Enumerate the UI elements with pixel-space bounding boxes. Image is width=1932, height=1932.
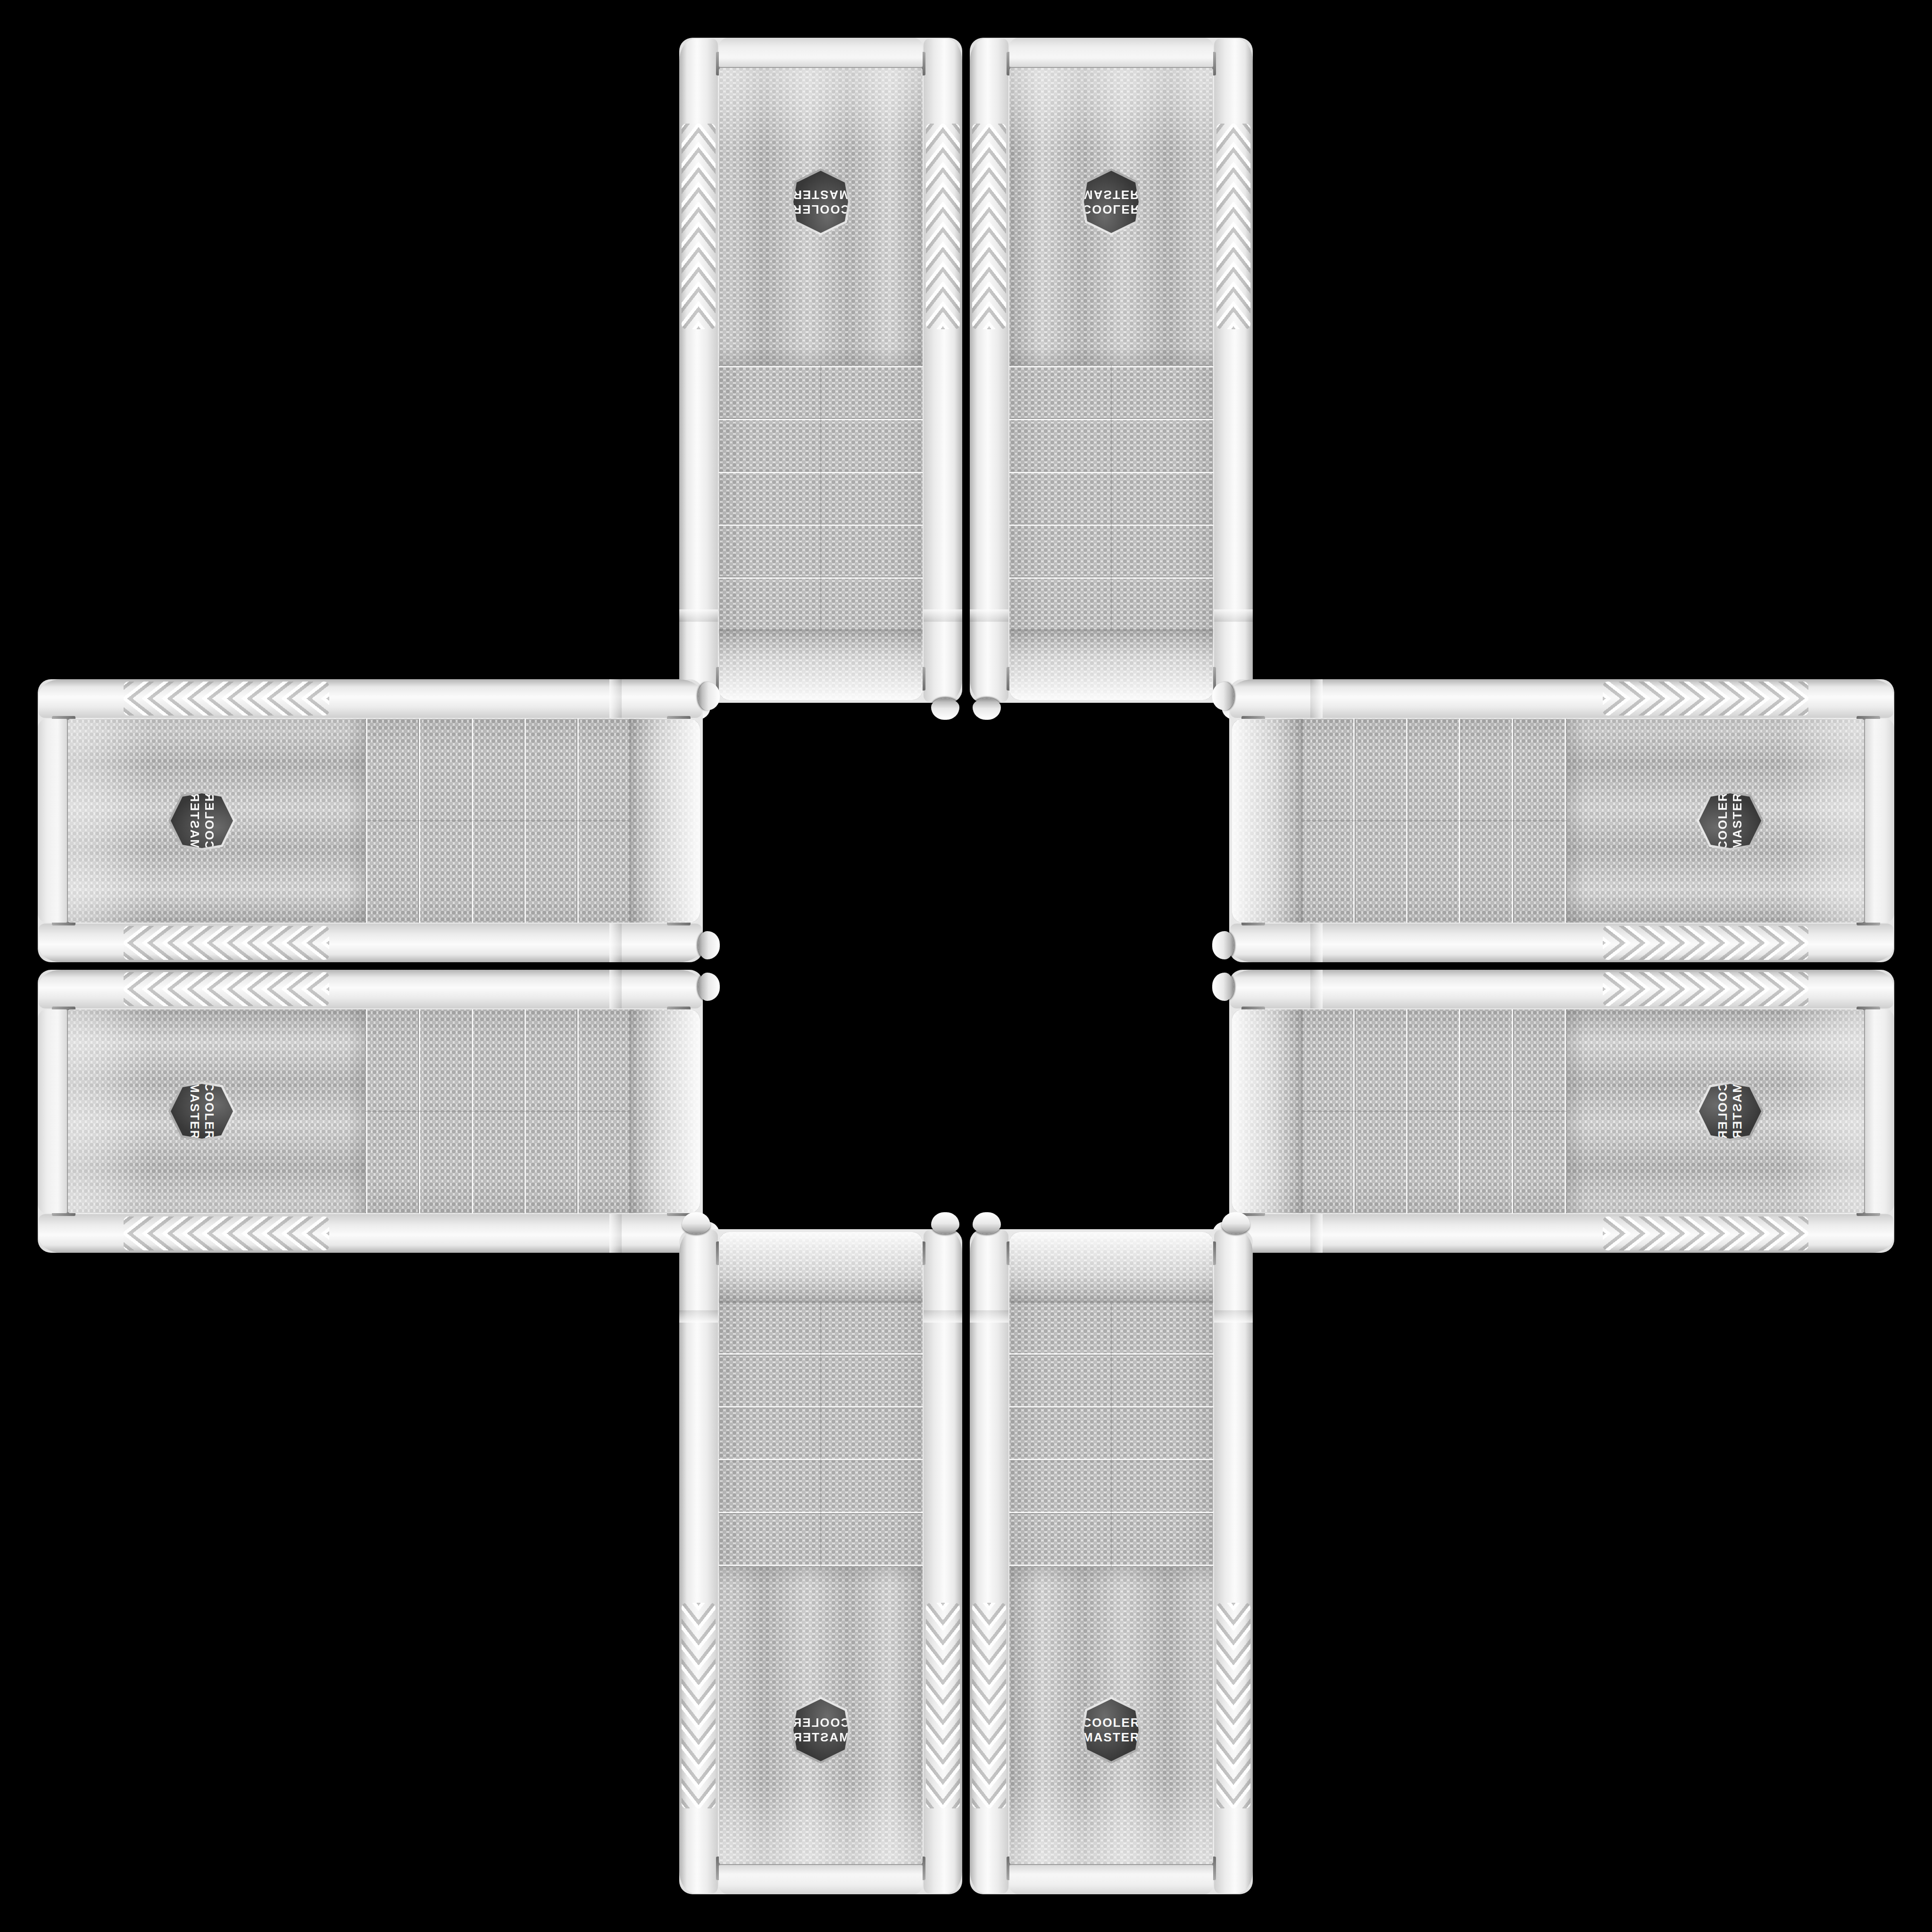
mesh-top-band xyxy=(1232,719,1303,923)
top-knob-right xyxy=(682,1212,710,1234)
top-knob-left xyxy=(698,931,720,959)
side-rail-left xyxy=(924,39,962,702)
grip-chevron-right xyxy=(989,1603,1006,1808)
mesh-front-panel: COOLER MASTER xyxy=(719,1232,923,1865)
grip-chevron-right xyxy=(989,124,1006,329)
grip-chevron-left xyxy=(943,1603,960,1808)
grip-ridges xyxy=(1603,1216,1808,1250)
badge-face: COOLER MASTER xyxy=(171,793,233,848)
grip-ridges xyxy=(124,1216,329,1250)
mesh-front-panel: COOLER MASTER xyxy=(67,719,700,923)
mesh-top-band xyxy=(1232,1009,1303,1213)
badge-text-line1: COOLER xyxy=(1082,1715,1140,1730)
side-rail-left xyxy=(970,39,1008,702)
pc-case-front-panel: COOLER MASTER xyxy=(1229,970,1894,1253)
pc-case-front-panel: COOLER MASTER xyxy=(38,970,703,1253)
grip-chevron-right xyxy=(1233,1603,1250,1808)
badge-text-line1: COOLER xyxy=(202,1082,217,1140)
grip-ridges xyxy=(972,1603,1006,1808)
badge-face: COOLER MASTER xyxy=(1084,171,1139,233)
grip-ridges xyxy=(124,682,329,716)
grip-chevron-left xyxy=(1603,699,1808,716)
grip-chevron-right xyxy=(1603,926,1808,943)
grip-chevron-right xyxy=(124,926,329,943)
badge-text-line2: MASTER xyxy=(1730,1083,1745,1140)
pc-case-front-panel: COOLER MASTER xyxy=(970,1229,1253,1894)
badge-text-line1: COOLER xyxy=(1715,791,1730,849)
badge-face: COOLER MASTER xyxy=(1084,1699,1139,1761)
grip-chevron-left xyxy=(1603,943,1808,960)
grip-ridges xyxy=(926,124,960,329)
grip-chevron-right xyxy=(926,1603,943,1808)
grip-chevron-right xyxy=(124,1233,329,1250)
grip-chevron-left xyxy=(124,972,329,989)
side-rail-left xyxy=(1230,970,1893,1008)
grip-chevron-right xyxy=(1233,124,1250,329)
pc-case-front-panel: COOLER MASTER xyxy=(679,38,962,703)
side-rail-right xyxy=(1214,39,1253,702)
case-top-left: COOLER MASTER xyxy=(679,38,962,703)
side-rail-left xyxy=(1230,924,1893,962)
case-left-top: COOLER MASTER xyxy=(38,679,703,962)
badge-text-line1: COOLER xyxy=(1715,1082,1730,1140)
case-bottom-left: COOLER MASTER xyxy=(679,1229,962,1894)
bottom-bezel xyxy=(1009,38,1213,68)
grip-chevron-left xyxy=(1216,124,1233,329)
badge-text-line2: MASTER xyxy=(1083,187,1140,202)
mesh-top-band xyxy=(719,1232,923,1303)
case-top-right: COOLER MASTER xyxy=(970,38,1253,703)
top-knob-left xyxy=(931,1212,959,1234)
drive-bay-slats xyxy=(365,719,629,923)
drive-bay-slats xyxy=(365,1009,629,1213)
top-knob-left xyxy=(1212,973,1234,1001)
grip-chevron-left xyxy=(972,124,989,329)
case-right-bottom: COOLER MASTER xyxy=(1229,970,1894,1253)
grip-ridges xyxy=(1603,972,1808,1006)
grip-ridges xyxy=(1603,926,1808,960)
grip-chevron-right xyxy=(1603,682,1808,699)
mesh-front-panel: COOLER MASTER xyxy=(719,67,923,700)
bottom-bezel xyxy=(719,1864,923,1894)
mesh-top-band xyxy=(629,1009,700,1213)
case-bottom-right: COOLER MASTER xyxy=(970,1229,1253,1894)
top-knob-right xyxy=(1222,1212,1250,1234)
badge-face: COOLER MASTER xyxy=(793,171,848,233)
grip-ridges xyxy=(124,972,329,1006)
grip-chevron-right xyxy=(926,124,943,329)
side-rail-left xyxy=(39,970,702,1008)
grip-chevron-left xyxy=(1603,972,1808,989)
grip-chevron-right xyxy=(124,682,329,699)
grip-ridges xyxy=(682,124,716,329)
grip-ridges xyxy=(1216,1603,1250,1808)
top-knob-left xyxy=(698,973,720,1001)
bottom-bezel xyxy=(38,719,68,923)
drive-bay-slats xyxy=(1009,1303,1213,1567)
case-right-top: COOLER MASTER xyxy=(1229,679,1894,962)
mesh-top-band xyxy=(719,629,923,700)
badge-text-line1: COOLER xyxy=(791,202,849,217)
badge-text-line2: MASTER xyxy=(792,187,849,202)
mesh-top-band xyxy=(629,719,700,923)
badge-text-line1: COOLER xyxy=(1082,202,1140,217)
grip-ridges xyxy=(1603,682,1808,716)
side-rail-right xyxy=(39,679,702,718)
side-rail-right xyxy=(1230,1214,1893,1253)
top-knob-left xyxy=(931,698,959,720)
bottom-bezel xyxy=(1864,719,1894,923)
grip-chevron-left xyxy=(972,1603,989,1808)
top-knob-left xyxy=(1212,931,1234,959)
badge-face: COOLER MASTER xyxy=(171,1084,233,1139)
grip-ridges xyxy=(682,1603,716,1808)
top-knob-right xyxy=(698,682,720,710)
grip-chevron-left xyxy=(699,124,716,329)
grip-chevron-left xyxy=(1603,1216,1808,1233)
bottom-bezel xyxy=(38,1009,68,1213)
side-rail-left xyxy=(924,1230,962,1893)
pc-case-front-panel: COOLER MASTER xyxy=(38,679,703,962)
bottom-bezel xyxy=(1009,1864,1213,1894)
drive-bay-slats xyxy=(1303,1009,1567,1213)
case-left-bottom: COOLER MASTER xyxy=(38,970,703,1253)
grip-ridges xyxy=(124,926,329,960)
badge-text-line1: COOLER xyxy=(202,791,217,849)
mesh-front-panel: COOLER MASTER xyxy=(1232,1009,1865,1213)
drive-bay-slats xyxy=(1009,365,1213,629)
side-rail-right xyxy=(679,39,718,702)
mesh-front-panel: COOLER MASTER xyxy=(1009,67,1213,700)
drive-bay-slats xyxy=(1303,719,1567,923)
badge-text-line2: MASTER xyxy=(792,1730,849,1745)
badge-text-line2: MASTER xyxy=(187,1083,202,1140)
grip-ridges xyxy=(1216,124,1250,329)
side-rail-left xyxy=(39,924,702,962)
grip-chevron-right xyxy=(124,989,329,1006)
bottom-bezel xyxy=(719,38,923,68)
mesh-front-panel: COOLER MASTER xyxy=(1232,719,1865,923)
pc-case-front-panel: COOLER MASTER xyxy=(1229,679,1894,962)
badge-text-line1: COOLER xyxy=(791,1715,849,1730)
collage-stage: COOLER MASTER xyxy=(0,0,1932,1932)
grip-ridges xyxy=(926,1603,960,1808)
grip-chevron-left xyxy=(124,699,329,716)
drive-bay-slats xyxy=(719,365,923,629)
grip-chevron-right xyxy=(682,1603,699,1808)
mesh-front-panel: COOLER MASTER xyxy=(1009,1232,1213,1865)
grip-chevron-left xyxy=(943,124,960,329)
pc-case-front-panel: COOLER MASTER xyxy=(679,1229,962,1894)
side-rail-left xyxy=(970,1230,1008,1893)
top-knob-right xyxy=(1212,682,1234,710)
badge-text-line2: MASTER xyxy=(187,792,202,849)
side-rail-right xyxy=(39,1214,702,1253)
pc-case-front-panel: COOLER MASTER xyxy=(970,38,1253,703)
badge-face: COOLER MASTER xyxy=(1699,793,1761,848)
drive-bay-slats xyxy=(719,1303,923,1567)
grip-chevron-left xyxy=(124,1216,329,1233)
badge-face: COOLER MASTER xyxy=(793,1699,848,1761)
mesh-top-band xyxy=(1009,629,1213,700)
bottom-bezel xyxy=(1864,1009,1894,1213)
grip-chevron-right xyxy=(1603,1233,1808,1250)
side-rail-right xyxy=(1230,679,1893,718)
mesh-top-band xyxy=(1009,1232,1213,1303)
top-knob-left xyxy=(973,698,1001,720)
badge-face: COOLER MASTER xyxy=(1699,1084,1761,1139)
grip-chevron-left xyxy=(1216,1603,1233,1808)
mesh-front-panel: COOLER MASTER xyxy=(67,1009,700,1213)
badge-text-line2: MASTER xyxy=(1730,792,1745,849)
side-rail-right xyxy=(1214,1230,1253,1893)
top-knob-left xyxy=(973,1212,1001,1234)
grip-ridges xyxy=(972,124,1006,329)
grip-chevron-right xyxy=(682,124,699,329)
grip-chevron-right xyxy=(1603,989,1808,1006)
badge-text-line2: MASTER xyxy=(1083,1730,1140,1745)
grip-chevron-left xyxy=(124,943,329,960)
grip-chevron-left xyxy=(699,1603,716,1808)
side-rail-right xyxy=(679,1230,718,1893)
